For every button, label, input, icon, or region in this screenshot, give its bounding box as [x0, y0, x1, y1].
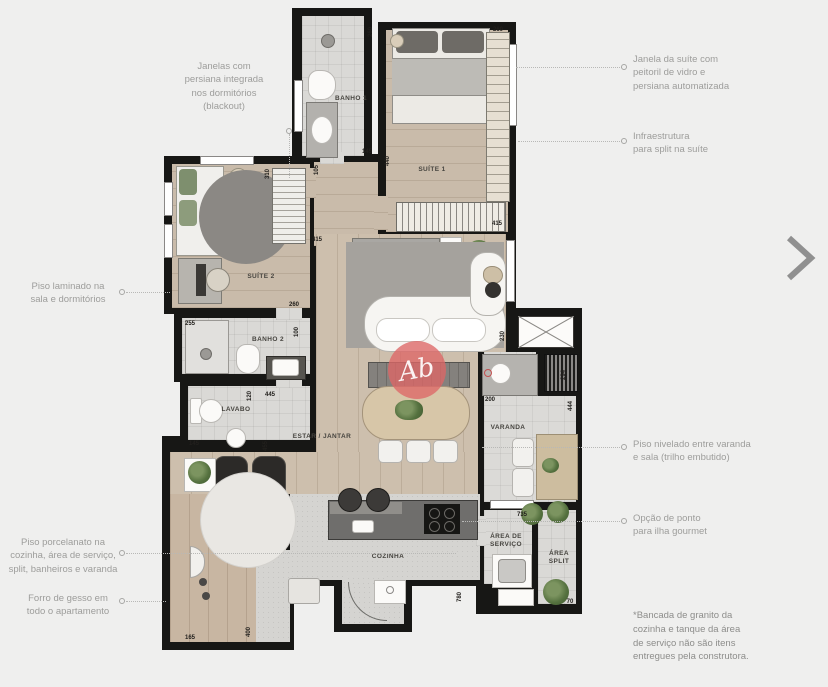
next-arrow[interactable] — [783, 233, 817, 283]
annotation-marker — [621, 444, 627, 450]
annotation-line — [516, 67, 622, 68]
shower-head-icon — [321, 34, 335, 48]
sink — [272, 359, 299, 376]
plant — [543, 579, 569, 605]
kitchen-cabinet — [288, 578, 320, 604]
annotation-line — [126, 292, 170, 293]
floor-plan: BANHO 1 SUÍTE 1 SUÍTE 2 BANHO 2 LAVABO E… — [0, 0, 828, 687]
watermark-monogram: Ab — [397, 352, 437, 388]
bed-blanket — [392, 58, 488, 96]
annotation-line — [482, 447, 622, 448]
window — [164, 182, 173, 216]
annotation-piso-porcelanato: Piso porcelanato na cozinha, área de ser… — [8, 536, 118, 576]
plant — [547, 501, 569, 523]
annotation-marker — [119, 598, 125, 604]
bar-stool — [366, 488, 390, 512]
suite2-wardrobe — [272, 168, 306, 244]
annotation-line — [462, 521, 622, 522]
decor-dot — [202, 592, 210, 600]
door-opening — [276, 308, 302, 320]
nightstand-lamp-icon — [390, 34, 404, 48]
annotation-marker — [119, 550, 125, 556]
room-label-servico: ÁREA DE SERVIÇO — [490, 533, 522, 549]
room-label-estar: ESTAR / JANTAR — [293, 433, 351, 441]
bar-stool — [338, 488, 362, 512]
lounge-chair — [512, 468, 534, 497]
footnote: *Bancada de granito da cozinha e tanque … — [633, 609, 813, 664]
side-table-black — [485, 282, 501, 298]
bed-pillow — [442, 31, 484, 53]
sofa-cushion — [376, 318, 430, 342]
burner-icon — [429, 521, 440, 532]
desk-chair — [206, 268, 230, 292]
annotation-line — [289, 134, 290, 178]
annotation-piso-nivelado: Piso nivelado entre varanda e sala (tril… — [633, 438, 813, 465]
sink — [352, 520, 374, 533]
table-plant — [542, 458, 559, 473]
suite1-closet — [486, 32, 510, 202]
burner-icon — [444, 508, 455, 519]
annotation-marker — [119, 289, 125, 295]
decor-dot — [199, 578, 207, 586]
desk-monitor — [196, 264, 206, 296]
room-label-cozinha: COZINHA — [372, 553, 404, 561]
toilet — [308, 70, 336, 100]
bed-pillow — [179, 200, 197, 226]
window — [200, 156, 254, 165]
annotation-janela-suite: Janela da suíte com peitoril de vidro e … — [633, 53, 803, 93]
annotation-line — [126, 553, 456, 554]
shower-head-icon — [200, 348, 212, 360]
room-label-lavabo: LAVABO — [222, 406, 251, 414]
toilet-bowl — [199, 399, 223, 423]
faucet-icon — [484, 369, 492, 377]
dining-chair — [433, 440, 458, 463]
watermark-badge: Ab — [388, 341, 446, 399]
plant — [188, 461, 211, 484]
annotation-marker — [621, 518, 627, 524]
sink — [490, 363, 511, 384]
burner-icon — [444, 521, 455, 532]
annotation-marker — [621, 138, 627, 144]
laundry-tank-basin — [498, 559, 526, 583]
faucet-icon — [386, 586, 394, 594]
annotation-infra-split: Infraestrutura para split na suíte — [633, 130, 803, 157]
door-opening — [306, 168, 316, 198]
dining-chair — [406, 440, 431, 463]
suite1-wardrobe — [396, 202, 506, 232]
room-label-banho1: BANHO 1 — [335, 95, 367, 103]
floor-plan-page: BANHO 1 SUÍTE 1 SUÍTE 2 BANHO 2 LAVABO E… — [0, 0, 828, 687]
annotation-line — [126, 601, 166, 602]
window — [506, 240, 515, 302]
room-label-suite2: SUÍTE 2 — [247, 273, 274, 281]
room-label-varanda: VARANDA — [491, 424, 526, 432]
shower-area — [185, 320, 229, 374]
annotation-marker — [621, 64, 627, 70]
cabinet — [498, 589, 534, 606]
annotation-opcao-ponto: Opção de ponto para ilha gourmet — [633, 512, 803, 539]
bed-pillow — [179, 169, 197, 195]
sink — [311, 116, 333, 144]
annotation-forro-gesso: Forro de gesso em todo o apartamento — [18, 592, 118, 619]
toilet — [236, 344, 260, 374]
window — [294, 80, 303, 132]
window — [164, 224, 173, 258]
room-label-suite1: SUÍTE 1 — [418, 166, 445, 174]
annotation-line — [518, 141, 622, 142]
annotation-marker — [286, 128, 292, 134]
annotation-janelas-blackout: Janelas com persiana integrada nos dormi… — [153, 60, 295, 113]
duct-hatch — [544, 354, 578, 392]
door-opening — [374, 196, 388, 230]
dimension-label: 780 — [457, 592, 463, 602]
room-label-banho2: BANHO 2 — [252, 336, 284, 344]
dining-chair — [378, 440, 403, 463]
elevator-shaft — [518, 316, 574, 348]
lounge-chair — [512, 438, 534, 467]
sofa-cushion — [432, 318, 486, 342]
burner-icon — [429, 508, 440, 519]
annotation-piso-laminado: Piso laminado na sala e dormitórios — [18, 280, 118, 307]
room-label-split: ÁREA SPLIT — [549, 550, 569, 566]
table-plant — [395, 400, 423, 420]
sink — [226, 428, 246, 448]
